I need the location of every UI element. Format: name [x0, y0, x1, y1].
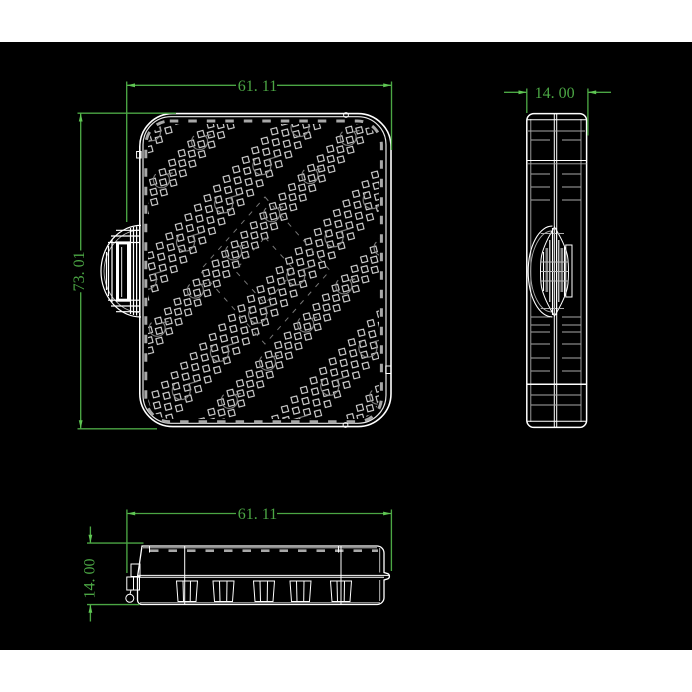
svg-text:61. 11: 61. 11 — [238, 78, 277, 95]
svg-text:14. 00: 14. 00 — [82, 559, 99, 599]
svg-text:73. 01: 73. 01 — [71, 251, 88, 291]
svg-text:61. 11: 61. 11 — [238, 506, 277, 523]
svg-text:14. 00: 14. 00 — [535, 85, 575, 102]
